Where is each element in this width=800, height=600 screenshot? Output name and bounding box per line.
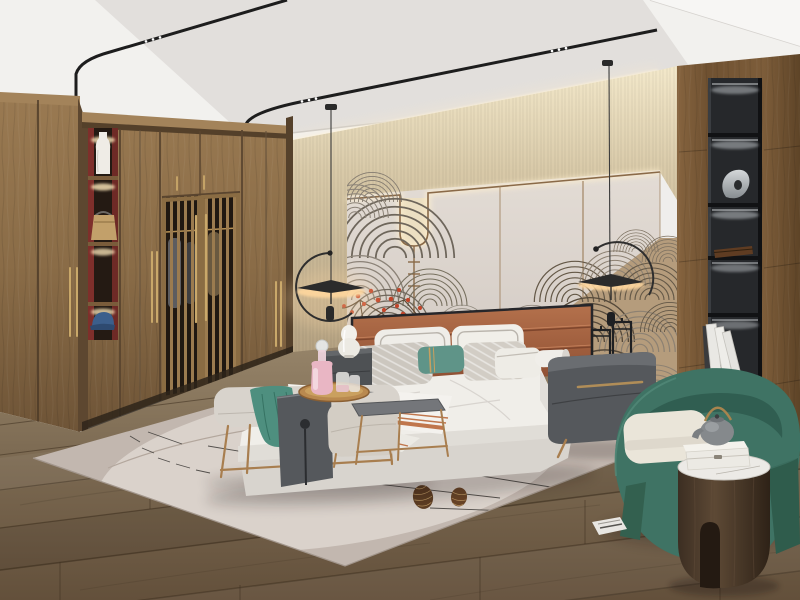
teapot-knob — [715, 414, 719, 418]
glasses — [336, 372, 360, 392]
tower-side-face — [78, 98, 88, 432]
pendant-right-canopy — [602, 60, 613, 66]
pendant-left-ball — [327, 250, 332, 255]
teapot-highlight — [705, 422, 719, 432]
wardrobe-side-panel — [286, 116, 293, 356]
tower-grain — [0, 96, 80, 432]
lattice-doors — [162, 193, 240, 400]
pendant-right-ball — [593, 246, 599, 252]
box-clasp — [714, 455, 722, 459]
teapot-body — [700, 419, 734, 446]
drum-body — [678, 468, 770, 588]
pendant-left-counterweight — [326, 306, 334, 321]
pillow-small-white — [494, 347, 541, 379]
sculpture-hole — [734, 180, 742, 190]
tan-handbag — [91, 212, 117, 240]
pillow-teal-lumbar — [417, 345, 464, 374]
pendant-left-canopy — [325, 104, 337, 110]
drum-arch-cutout — [700, 522, 720, 588]
bedroom-scene — [0, 0, 800, 600]
c-table-slot — [305, 429, 306, 485]
decanter-highlight — [313, 368, 318, 390]
c-table-hole — [300, 419, 310, 429]
bedroom-photo — [0, 0, 800, 600]
wardrobe-display-niche — [88, 128, 118, 340]
